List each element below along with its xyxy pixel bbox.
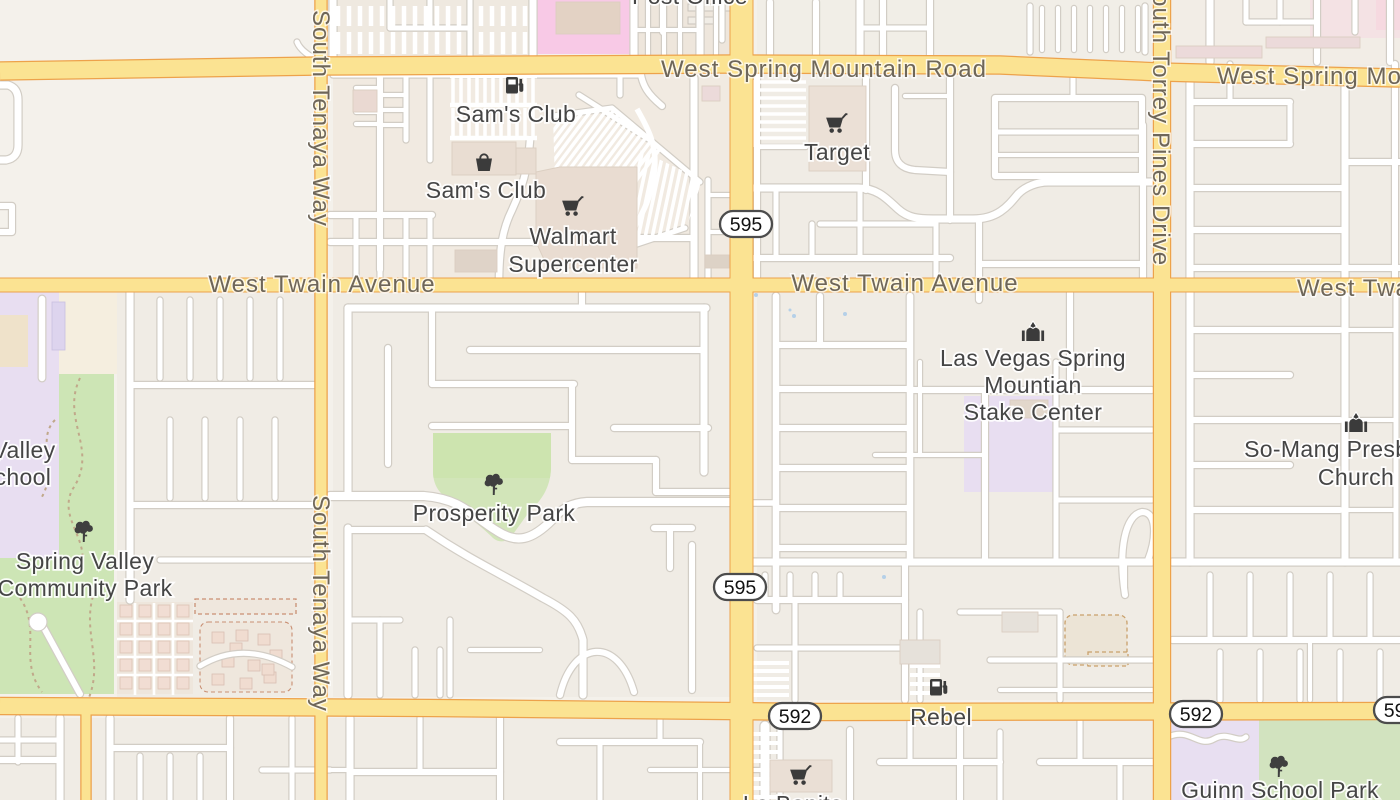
svg-text:592: 592 <box>1384 700 1400 722</box>
svg-text:595: 595 <box>724 577 757 599</box>
svg-text:Prosperity Park: Prosperity Park <box>413 500 576 526</box>
svg-text:Sam's Club: Sam's Club <box>426 177 546 203</box>
svg-text:So-Mang Presbyterian: So-Mang Presbyterian <box>1244 436 1400 462</box>
svg-text:West Twain Avenue: West Twain Avenue <box>791 270 1018 297</box>
svg-text:Guinn School Park: Guinn School Park <box>1181 777 1379 800</box>
svg-text:Mountian: Mountian <box>984 372 1081 398</box>
svg-text:Target: Target <box>804 139 870 165</box>
svg-text:Las Vegas Spring: Las Vegas Spring <box>940 345 1126 371</box>
svg-text:Community Park: Community Park <box>0 575 173 601</box>
svg-text:592: 592 <box>1180 704 1213 726</box>
svg-text:Walmart: Walmart <box>529 223 616 249</box>
svg-text:595: 595 <box>730 214 763 236</box>
svg-text:Supercenter: Supercenter <box>508 251 637 277</box>
svg-text:Stake Center: Stake Center <box>964 399 1102 425</box>
svg-text:South Tenaya Way: South Tenaya Way <box>307 495 334 712</box>
svg-text:West Twain Avenue: West Twain Avenue <box>208 271 435 298</box>
svg-text:La Bonita: La Bonita <box>743 791 843 800</box>
svg-text:West Spring Mountain Road: West Spring Mountain Road <box>1217 63 1400 90</box>
svg-text:Spring Valley: Spring Valley <box>16 548 155 574</box>
svg-text:West Twain Avenue: West Twain Avenue <box>1297 275 1400 302</box>
svg-text:School: School <box>0 464 51 490</box>
svg-text:592: 592 <box>779 706 812 728</box>
svg-text:South Torrey Pines Drive: South Torrey Pines Drive <box>1147 0 1174 266</box>
svg-text:Rebel: Rebel <box>910 704 972 730</box>
svg-text:Post Office: Post Office <box>632 0 748 9</box>
svg-text:Sam's Club: Sam's Club <box>456 101 576 127</box>
svg-text:Church: Church <box>1318 464 1394 490</box>
svg-text:West Spring Mountain Road: West Spring Mountain Road <box>661 56 987 83</box>
svg-text:Valley: Valley <box>0 437 56 463</box>
svg-text:South Tenaya Way: South Tenaya Way <box>307 10 334 227</box>
